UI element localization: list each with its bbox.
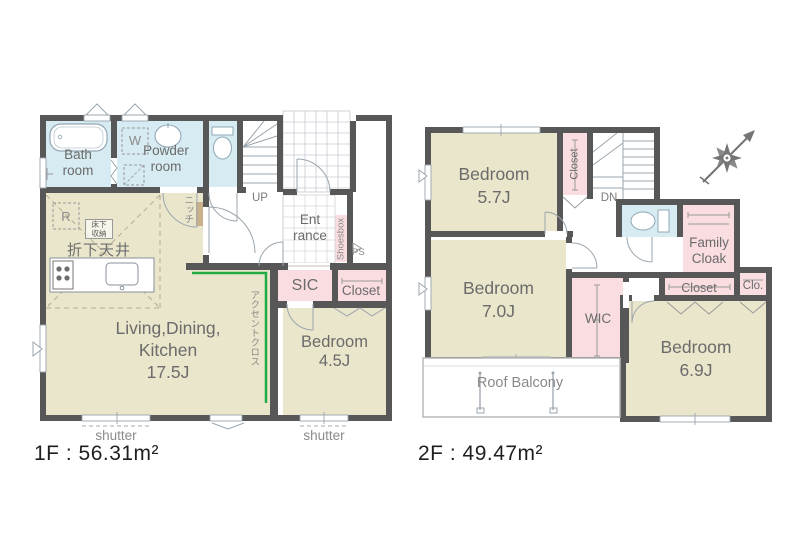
stairs2-icon bbox=[593, 133, 654, 199]
label-closet-2f: Closet bbox=[666, 281, 732, 296]
label-bedroom-57: Bedroom 5.7J bbox=[431, 163, 557, 209]
label-clo: Clo. bbox=[738, 280, 768, 294]
label-wic: WIC bbox=[574, 311, 622, 327]
label-bath-room: Bath room bbox=[46, 147, 110, 179]
toilet2-icon bbox=[631, 210, 669, 232]
stairs1-icon bbox=[243, 121, 277, 190]
label-washer: W bbox=[122, 133, 148, 148]
toilet1-icon bbox=[212, 127, 233, 159]
label-accent-wallpaper: アクセントクロス bbox=[248, 290, 259, 366]
label-sic: SIC bbox=[280, 277, 330, 296]
label-bedroom-45: Bedroom 4.5J bbox=[283, 333, 386, 372]
label-ldk: Living,Dining, Kitchen 17.5J bbox=[68, 318, 268, 384]
label-bedroom-69: Bedroom 6.9J bbox=[626, 336, 766, 382]
label-underfloor-storage: 床下 収納 bbox=[85, 219, 113, 239]
floor2-area-label: 2F : 49.47m² bbox=[418, 442, 578, 467]
label-bedroom-70: Bedroom 7.0J bbox=[431, 277, 566, 323]
label-entrance: Ent rance bbox=[286, 212, 334, 244]
label-shutter-right: shutter bbox=[297, 428, 351, 444]
label-stairs-dn: DN bbox=[596, 192, 622, 206]
label-family-cloak: Family Cloak bbox=[682, 235, 736, 267]
label-roof-balcony: Roof Balcony bbox=[446, 375, 594, 392]
label-closet-1f: Closet bbox=[337, 283, 385, 299]
label-hall-closet: Closet bbox=[569, 148, 582, 179]
label-pipe-space: PS bbox=[352, 247, 372, 258]
terrace-door-mark bbox=[212, 423, 244, 429]
label-refrigerator: R bbox=[53, 209, 79, 224]
floor1-area-label: 1F : 56.31m² bbox=[34, 442, 194, 467]
floorplan-canvas: Bath room Powder room W UP Ent rance Sho… bbox=[0, 0, 800, 552]
kitchen-counter-icon bbox=[50, 258, 154, 292]
label-shoesbox: Shoesbox bbox=[335, 218, 346, 260]
porch-tile-grid bbox=[283, 111, 350, 192]
label-niche: ニッチ bbox=[182, 195, 193, 224]
compass-icon bbox=[700, 130, 755, 184]
label-dropped-ceiling: 折下天井 bbox=[60, 242, 138, 260]
floorplan-graphics bbox=[0, 0, 800, 552]
label-stairs-up: UP bbox=[246, 192, 274, 206]
